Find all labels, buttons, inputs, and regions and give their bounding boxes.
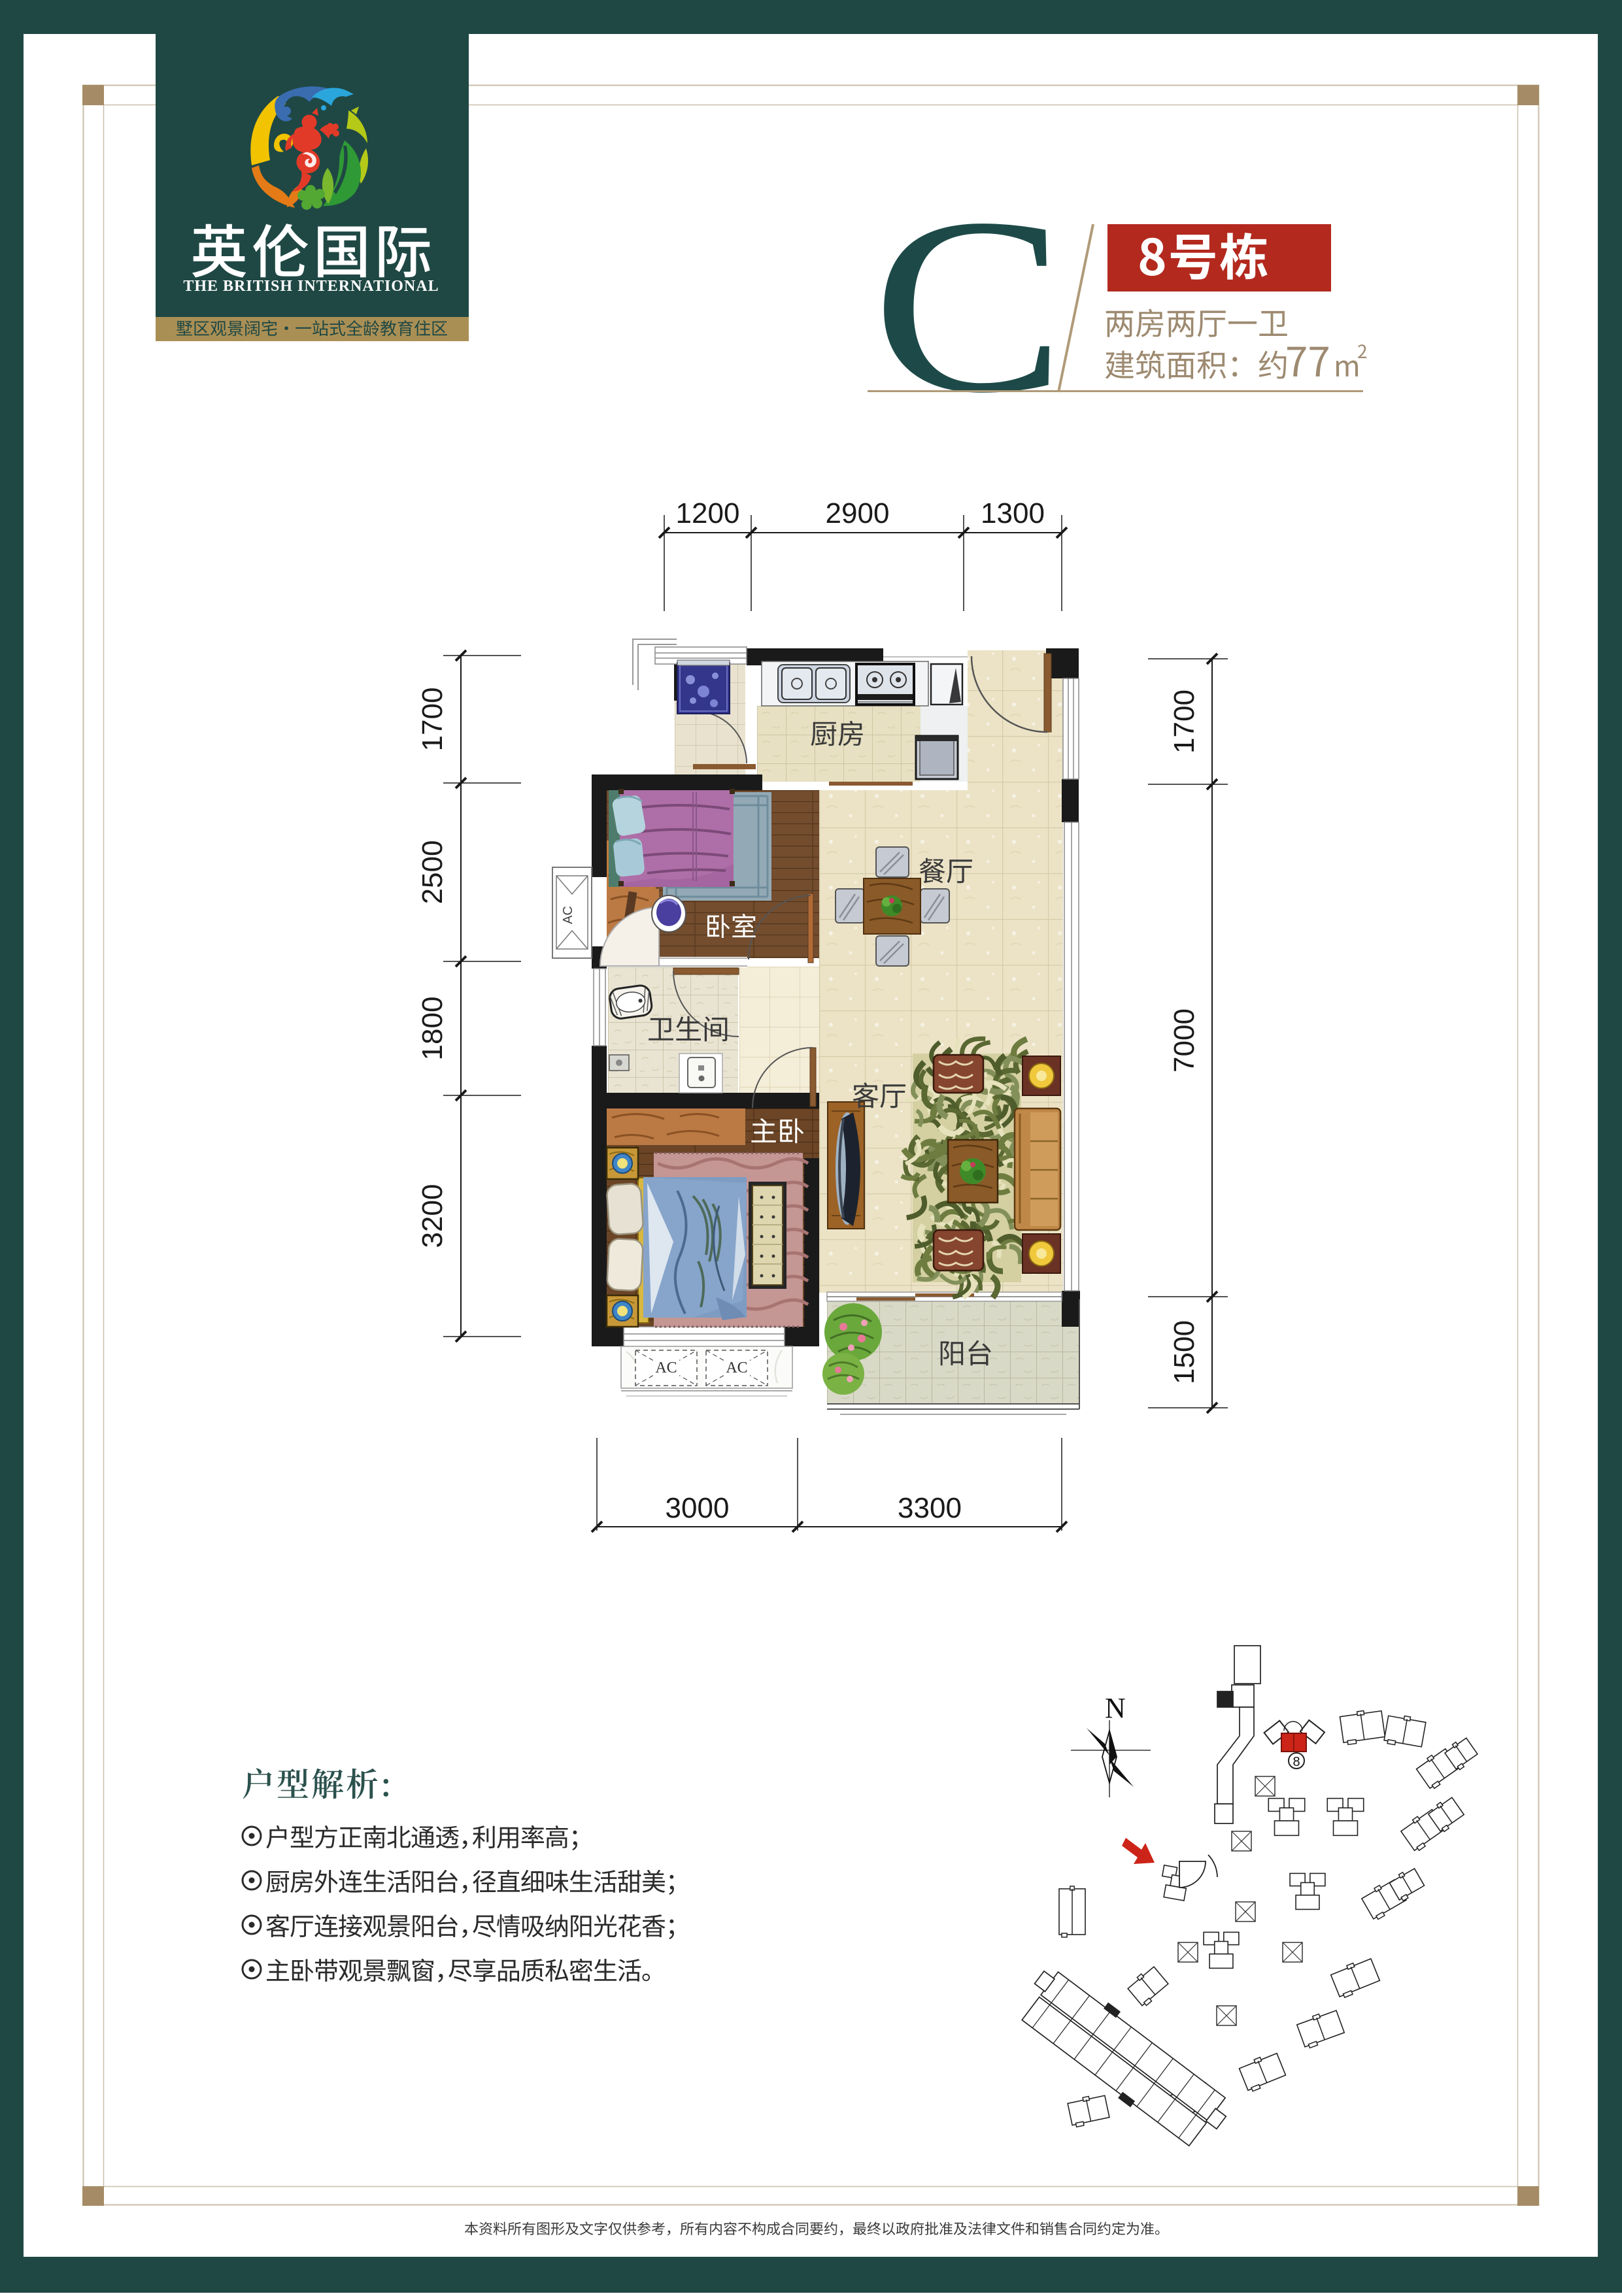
svg-text:7000: 7000 [1168, 1008, 1200, 1073]
svg-text:C: C [872, 166, 1065, 445]
svg-text:1300: 1300 [981, 497, 1045, 529]
svg-text:AC: AC [561, 906, 575, 924]
svg-text:2900: 2900 [826, 497, 890, 529]
svg-text:2500: 2500 [416, 840, 448, 905]
svg-text:THE BRITISH INTERNATIONAL: THE BRITISH INTERNATIONAL [183, 278, 439, 295]
svg-text:AC: AC [726, 1359, 747, 1376]
svg-text:1500: 1500 [1168, 1320, 1200, 1384]
svg-text:8: 8 [1293, 1755, 1300, 1769]
svg-text:3300: 3300 [898, 1492, 962, 1524]
svg-text:1700: 1700 [1168, 690, 1200, 754]
svg-text:N: N [1105, 1692, 1126, 1724]
svg-text:1800: 1800 [416, 997, 448, 1061]
svg-text:1200: 1200 [676, 497, 740, 529]
svg-text:3000: 3000 [666, 1492, 730, 1524]
svg-text:3200: 3200 [416, 1184, 448, 1248]
svg-text:1700: 1700 [416, 688, 448, 752]
svg-text:AC: AC [655, 1359, 677, 1376]
